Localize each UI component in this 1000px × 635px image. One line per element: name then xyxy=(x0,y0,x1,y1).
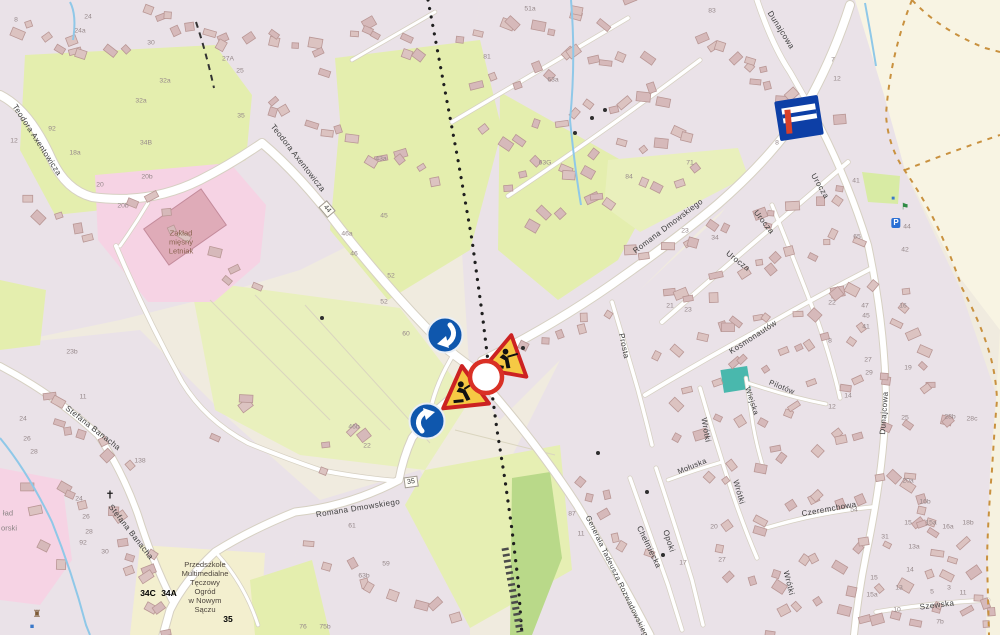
cross-icon: ✝ xyxy=(105,491,114,502)
annotation-label: 34A xyxy=(161,588,177,598)
playground-icon: ⚑ xyxy=(901,203,909,212)
parking-icon: P xyxy=(891,218,900,228)
poi-label: Przedszkole Multimedialne Tęczowy Ogród … xyxy=(182,561,229,615)
road-closed-sign-icon xyxy=(466,357,506,397)
poi-label: ład xyxy=(3,510,13,519)
map-canvas[interactable]: Teodora AxentowiczaTeodora AxentowiczaRo… xyxy=(0,0,1000,635)
route-number-badge: 35 xyxy=(403,476,418,489)
water-icon: ■ xyxy=(30,624,34,631)
info-icon: ■ xyxy=(891,196,895,202)
annotation-label: 35 xyxy=(223,614,232,624)
monument-icon: ♜ xyxy=(33,610,42,620)
poi-label: orski xyxy=(1,525,17,534)
poi-label: Zakład mięsny Letniak xyxy=(169,230,194,257)
route-flag-marker-icon xyxy=(768,88,829,148)
annotation-label: 34C xyxy=(140,588,156,598)
map-base-layer xyxy=(0,0,1000,635)
